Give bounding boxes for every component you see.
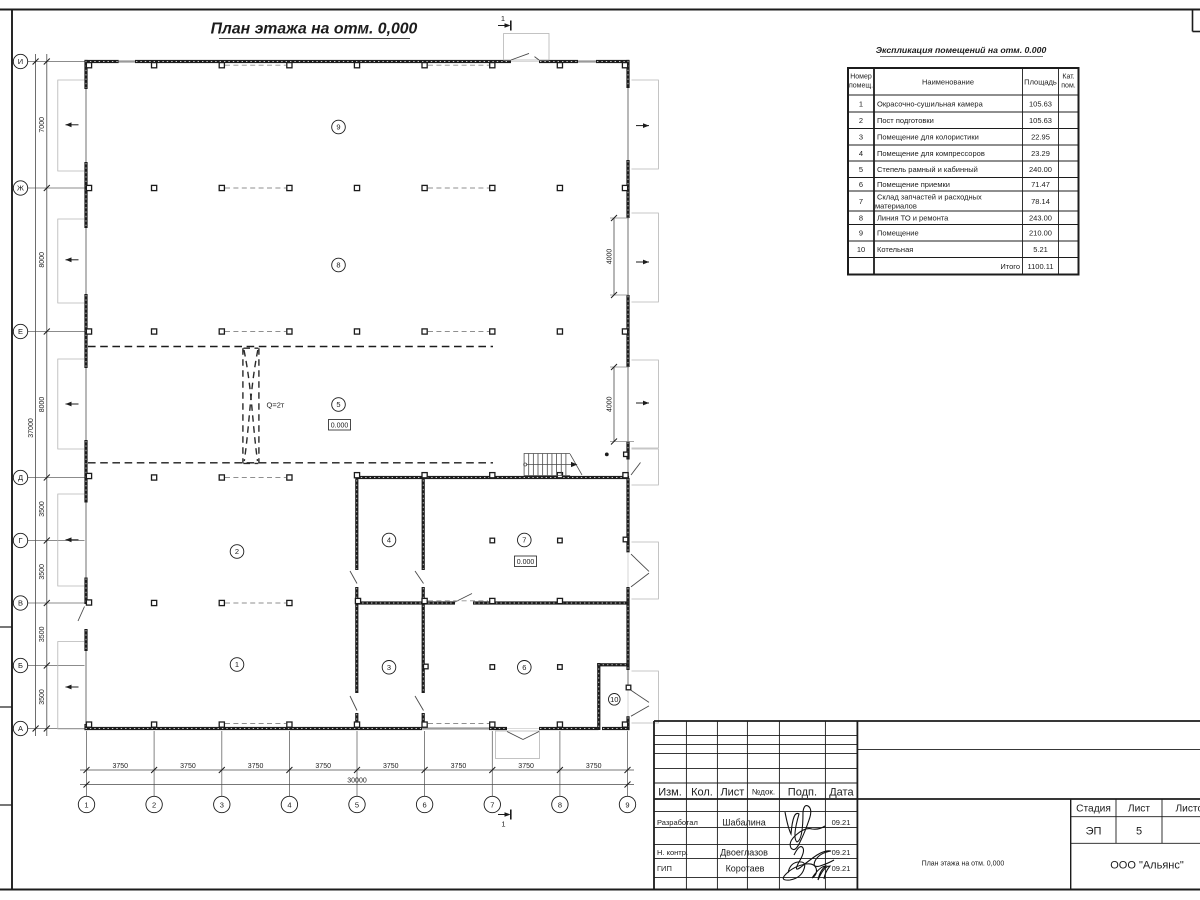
svg-text:22.95: 22.95 — [1031, 133, 1050, 142]
svg-text:Склад запчастей и расходных: Склад запчастей и расходных — [877, 193, 982, 202]
svg-text:ЭП: ЭП — [1086, 826, 1102, 838]
svg-text:№док.: №док. — [752, 788, 775, 797]
svg-text:4: 4 — [859, 149, 863, 158]
svg-text:8000: 8000 — [39, 397, 46, 413]
svg-text:3500: 3500 — [39, 689, 46, 705]
svg-text:Е: Е — [18, 327, 23, 336]
svg-text:Дата: Дата — [829, 787, 854, 799]
svg-text:3500: 3500 — [39, 626, 46, 642]
svg-text:240.00: 240.00 — [1029, 165, 1052, 174]
svg-text:5: 5 — [859, 165, 863, 174]
svg-text:09.21: 09.21 — [832, 848, 851, 857]
svg-text:Помещение для колористики: Помещение для колористики — [877, 133, 979, 142]
svg-text:Номер: Номер — [850, 74, 872, 81]
svg-text:Листов: Листов — [1175, 804, 1200, 815]
svg-text:Кат.: Кат. — [1062, 74, 1074, 81]
svg-text:6: 6 — [859, 180, 863, 189]
svg-text:78.14: 78.14 — [1031, 197, 1050, 206]
svg-text:7: 7 — [490, 800, 494, 809]
svg-text:3750: 3750 — [586, 763, 602, 770]
svg-text:0.000: 0.000 — [517, 559, 535, 566]
svg-text:1: 1 — [501, 14, 505, 23]
svg-text:7: 7 — [859, 197, 863, 206]
svg-text:Г: Г — [18, 536, 22, 545]
svg-text:3: 3 — [859, 133, 863, 142]
svg-text:А: А — [18, 724, 23, 733]
svg-text:В: В — [18, 599, 23, 608]
svg-text:3750: 3750 — [383, 763, 399, 770]
svg-text:Разработал: Разработал — [657, 818, 698, 827]
svg-text:Помещение для компрессоров: Помещение для компрессоров — [877, 149, 985, 158]
svg-text:9: 9 — [859, 229, 863, 238]
svg-text:10: 10 — [610, 695, 618, 704]
svg-text:1100.11: 1100.11 — [1028, 262, 1054, 271]
svg-text:3750: 3750 — [113, 763, 129, 770]
svg-text:ГИП: ГИП — [657, 864, 672, 873]
svg-text:105.63: 105.63 — [1029, 99, 1052, 108]
svg-text:Пост подготовки: Пост подготовки — [877, 116, 934, 125]
svg-text:7: 7 — [522, 536, 526, 545]
svg-text:Б: Б — [18, 661, 23, 670]
svg-text:Котельная: Котельная — [877, 245, 913, 254]
svg-text:71.47: 71.47 — [1031, 180, 1050, 189]
svg-text:Линия ТО и ремонта: Линия ТО и ремонта — [877, 214, 949, 223]
svg-text:30000: 30000 — [347, 777, 367, 784]
svg-text:9: 9 — [336, 123, 340, 132]
svg-text:3: 3 — [220, 800, 224, 809]
svg-text:Лист: Лист — [1128, 804, 1150, 815]
svg-text:09.21: 09.21 — [832, 818, 851, 827]
svg-text:Площадь: Площадь — [1024, 78, 1057, 87]
svg-text:пом.: пом. — [1061, 83, 1075, 90]
svg-text:37000: 37000 — [28, 418, 35, 438]
svg-text:Кол.: Кол. — [691, 787, 713, 799]
svg-text:3: 3 — [387, 663, 391, 672]
svg-text:Ж: Ж — [17, 184, 24, 193]
svg-text:Экспликация помещений на отм.: Экспликация помещений на отм. 0.000 — [876, 45, 1047, 55]
svg-text:Н. контр.: Н. контр. — [657, 848, 688, 857]
svg-text:План этажа на отм. 0,000: План этажа на отм. 0,000 — [922, 861, 1005, 868]
svg-text:Помещение: Помещение — [877, 229, 919, 238]
svg-text:10: 10 — [857, 245, 865, 254]
svg-text:3750: 3750 — [180, 763, 196, 770]
svg-text:Подп.: Подп. — [788, 787, 817, 799]
svg-text:8000: 8000 — [39, 252, 46, 268]
svg-text:8: 8 — [859, 214, 863, 223]
svg-text:5: 5 — [336, 400, 340, 409]
svg-text:материалов: материалов — [875, 202, 917, 211]
svg-text:09.21: 09.21 — [832, 864, 851, 873]
svg-text:0.000: 0.000 — [331, 423, 349, 430]
svg-text:Лист: Лист — [720, 787, 744, 799]
svg-text:Степель рамный и кабинный: Степель рамный и кабинный — [877, 165, 978, 174]
svg-text:3750: 3750 — [451, 763, 467, 770]
svg-text:243.00: 243.00 — [1029, 214, 1052, 223]
svg-text:5: 5 — [1136, 826, 1142, 838]
svg-text:210.00: 210.00 — [1029, 229, 1052, 238]
svg-text:9: 9 — [625, 800, 629, 809]
svg-text:Д: Д — [18, 473, 23, 482]
svg-text:Шабалина: Шабалина — [722, 818, 765, 828]
svg-text:3500: 3500 — [39, 564, 46, 580]
svg-text:ООО "Альянс": ООО "Альянс" — [1110, 860, 1184, 872]
svg-text:2: 2 — [235, 547, 239, 556]
svg-text:5: 5 — [355, 800, 359, 809]
svg-text:Стадия: Стадия — [1076, 804, 1111, 815]
svg-text:7000: 7000 — [39, 117, 46, 133]
svg-text:4000: 4000 — [607, 249, 614, 265]
svg-text:8: 8 — [558, 800, 562, 809]
svg-text:6: 6 — [423, 800, 427, 809]
svg-text:1: 1 — [235, 660, 239, 669]
svg-text:План этажа на отм. 0,000: План этажа на отм. 0,000 — [211, 21, 418, 38]
svg-text:8: 8 — [336, 261, 340, 270]
svg-text:5.21: 5.21 — [1033, 245, 1048, 254]
svg-text:1: 1 — [501, 820, 505, 829]
svg-text:3500: 3500 — [39, 501, 46, 517]
svg-text:Изм.: Изм. — [658, 787, 682, 799]
svg-text:И: И — [18, 57, 23, 66]
svg-text:3750: 3750 — [518, 763, 534, 770]
svg-text:3750: 3750 — [315, 763, 331, 770]
svg-text:Коротаев: Коротаев — [726, 864, 765, 874]
svg-text:Наименование: Наименование — [922, 78, 974, 87]
svg-text:Итого: Итого — [1000, 262, 1020, 271]
svg-text:Q=2т: Q=2т — [267, 400, 285, 409]
svg-text:6: 6 — [522, 663, 526, 672]
svg-text:4000: 4000 — [607, 396, 614, 412]
svg-text:2: 2 — [859, 116, 863, 125]
svg-text:помещ.: помещ. — [849, 83, 873, 90]
svg-text:Окрасочно-сушильная камера: Окрасочно-сушильная камера — [877, 99, 984, 108]
svg-text:23.29: 23.29 — [1031, 149, 1050, 158]
svg-text:1: 1 — [84, 800, 88, 809]
svg-text:1: 1 — [859, 99, 863, 108]
svg-text:2: 2 — [152, 800, 156, 809]
svg-text:4: 4 — [387, 536, 391, 545]
svg-text:4: 4 — [287, 800, 291, 809]
svg-text:105.63: 105.63 — [1029, 116, 1052, 125]
svg-text:3750: 3750 — [248, 763, 264, 770]
svg-text:Помещение приемки: Помещение приемки — [877, 180, 950, 189]
svg-text:Двоеглазов: Двоеглазов — [720, 848, 768, 858]
